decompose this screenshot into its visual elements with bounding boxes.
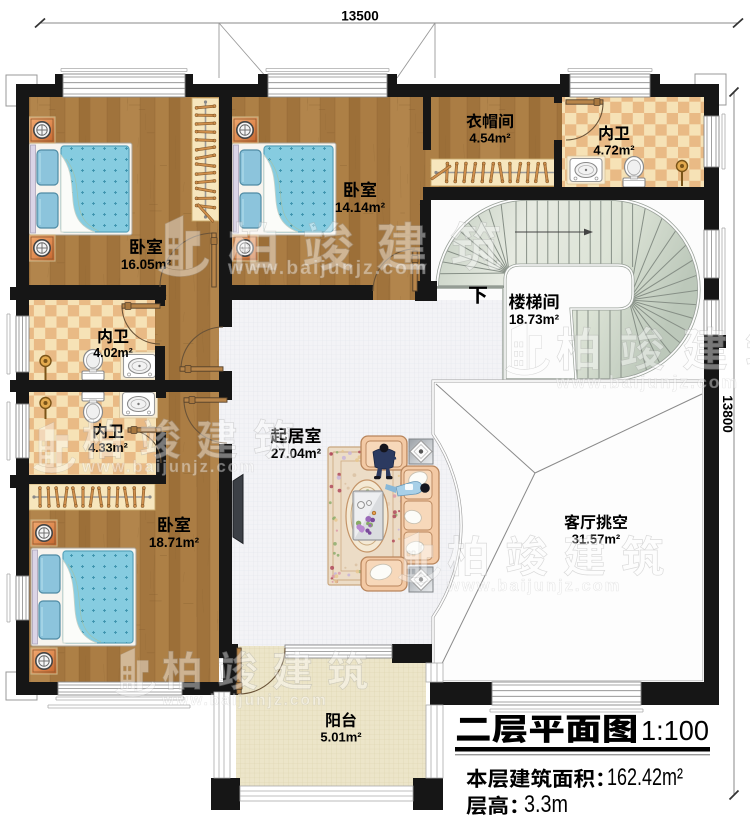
svg-text:www.baijunjz.com: www.baijunjz.com <box>161 692 328 709</box>
svg-text:4.02m²: 4.02m² <box>93 346 133 360</box>
svg-text:18.71m²: 18.71m² <box>149 535 200 550</box>
svg-text:4.72m²: 4.72m² <box>593 143 635 158</box>
svg-text:4.54m²: 4.54m² <box>469 131 511 146</box>
svg-text:www.baijunjz.com: www.baijunjz.com <box>227 257 428 279</box>
svg-text:www.baijunjz.com: www.baijunjz.com <box>81 458 256 476</box>
svg-text:27.04m²: 27.04m² <box>271 446 322 461</box>
svg-text:18.73m²: 18.73m² <box>509 312 560 327</box>
svg-text:1:100: 1:100 <box>641 715 709 746</box>
svg-text:www.baijunjz.com: www.baijunjz.com <box>555 372 739 392</box>
svg-text:14.14m²: 14.14m² <box>335 200 386 215</box>
svg-text:13500: 13500 <box>341 9 379 24</box>
svg-text:162.42m²: 162.42m² <box>607 764 683 791</box>
svg-text:5.01m²: 5.01m² <box>320 730 362 745</box>
svg-text:13800: 13800 <box>720 395 735 433</box>
svg-text:www.baijunjz.com: www.baijunjz.com <box>446 577 621 595</box>
svg-text:3.3m: 3.3m <box>524 791 568 818</box>
